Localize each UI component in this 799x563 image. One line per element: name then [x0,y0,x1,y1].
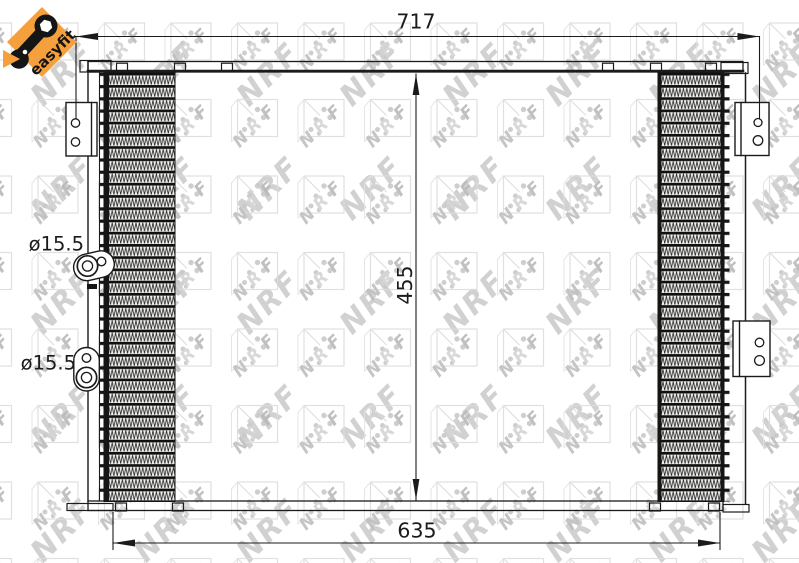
port-fitting-lower [74,348,100,392]
dimension-top-width: 717 [76,10,760,120]
dimension-label-height: 455 [393,265,417,304]
left-core-fins [99,73,175,502]
technical-drawing-page: NRF N R F [0,0,799,563]
bottom-right-foot [723,505,749,513]
bracket-bottom-right [733,321,770,377]
dimension-height: 455 [393,74,419,500]
easyfit-badge: easyfit [0,0,84,84]
condenser-drawing: 717 455 635 ø15.5 ø15.5 [0,0,799,563]
bottom-mounting-tabs [116,503,720,511]
tank-tick-mark [87,284,97,289]
bracket-top-left [66,103,97,157]
dimension-label-lower-port: ø15.5 [21,352,76,375]
dimension-label-bottom-width: 635 [397,519,436,543]
bottom-left-foot [67,504,113,511]
right-core-fins [658,73,730,502]
bracket-top-right [735,103,769,156]
dimension-bottom-width: 635 [113,513,720,550]
dimension-label-top-width: 717 [396,10,435,34]
dimension-label-upper-port: ø15.5 [29,233,84,256]
